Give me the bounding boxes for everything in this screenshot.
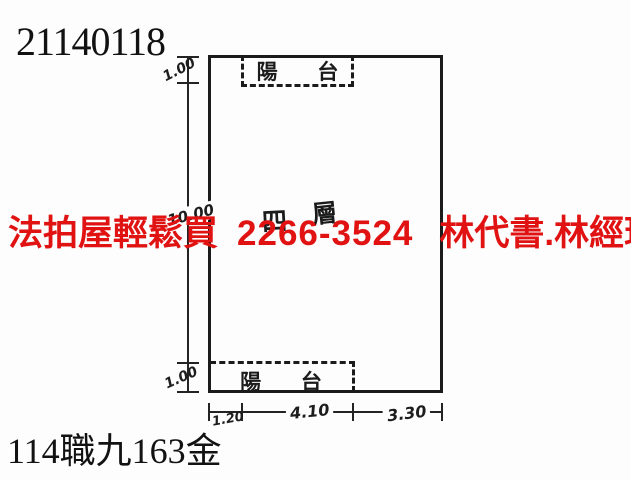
left-dimension-tick (177, 391, 199, 393)
dim-bottom-right: 3.30 (382, 401, 431, 426)
watermark-banner: 法拍屋輕鬆買 2266-3524 林代書.林經理 (0, 215, 631, 253)
left-dimension-tick (177, 82, 199, 84)
watermark-phone: 2266-3524 (237, 215, 413, 253)
balcony-bottom-label: 陽 台 (223, 366, 339, 396)
balcony-top: 陽 台 (241, 55, 354, 87)
floorplan-scan: 21140118 陽 台 陽 台 四 層 1.00 10.00 1.00 1.2… (0, 0, 631, 480)
dim-left-balcony-bottom: 1.00 (162, 364, 200, 393)
left-dimension-tick (177, 362, 199, 364)
bottom-dimension-tick (441, 403, 443, 421)
balcony-top-label: 陽 台 (240, 56, 356, 86)
plan-id: 21140118 (16, 18, 165, 65)
balcony-bottom: 陽 台 (210, 361, 355, 392)
watermark-agency: 法拍屋輕鬆買 (8, 215, 218, 253)
bottom-dimension-tick (352, 403, 354, 421)
watermark-contacts: 林代書.林經理 (439, 215, 631, 253)
dim-left-balcony-top: 1.00 (160, 55, 198, 85)
bottom-dimension-tick (208, 403, 210, 421)
dim-bottom-middle: 4.10 (285, 400, 334, 424)
case-number: 114職九163金 (7, 422, 222, 474)
